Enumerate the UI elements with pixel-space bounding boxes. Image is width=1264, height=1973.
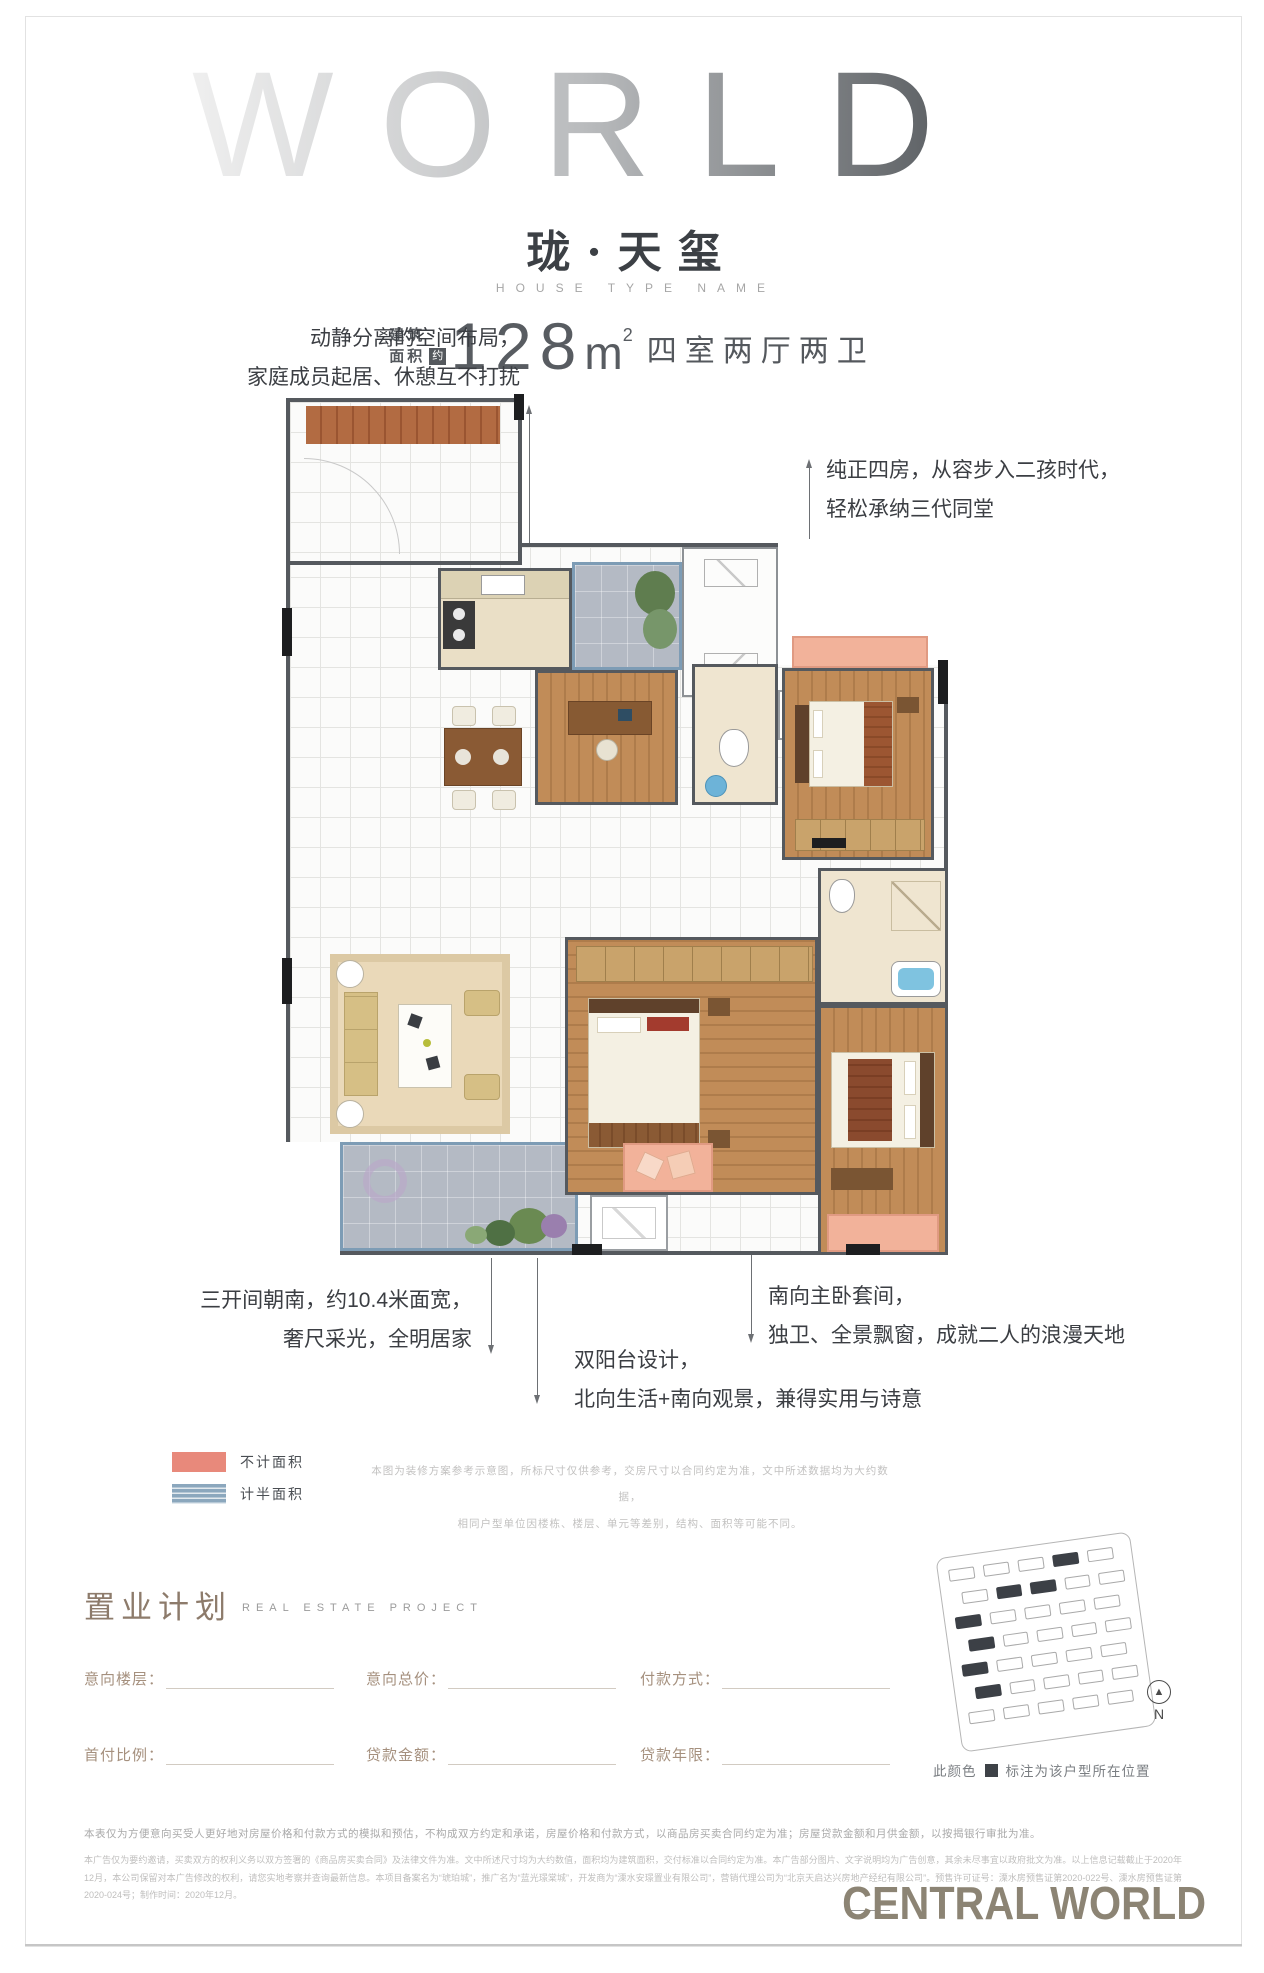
armchair (464, 990, 500, 1016)
building (1093, 1594, 1120, 1610)
shower (891, 881, 941, 931)
plant (643, 609, 677, 649)
caption-prefix: 此颜色 (933, 1760, 977, 1780)
bay-window-pink (623, 1143, 713, 1192)
plan-mask (282, 1142, 340, 1260)
field-down-payment: 首付比例： (84, 1744, 334, 1765)
area-unit-sup: 2 (623, 325, 633, 345)
building (1037, 1699, 1064, 1715)
annotation-north-layout: 动静分离的空间布局， 家庭成员起居、休憩互不打扰 (180, 320, 520, 398)
building (1031, 1652, 1058, 1668)
building (996, 1657, 1023, 1673)
bed (588, 998, 700, 1148)
appliance (704, 559, 758, 587)
building-highlighted (968, 1636, 995, 1651)
living-room-rug (330, 954, 510, 1134)
column (572, 1244, 602, 1255)
arrow-down-icon (748, 1334, 754, 1343)
kitchen (438, 568, 572, 670)
column (282, 958, 292, 1004)
sofa (344, 992, 378, 1096)
building (1112, 1665, 1139, 1680)
field-input-line[interactable] (722, 1668, 890, 1689)
building (1077, 1669, 1104, 1684)
bedroom-north (782, 668, 934, 860)
column (938, 660, 948, 704)
annotation-line: 三开间朝南，约10.4米面宽， (150, 1282, 472, 1321)
building-highlighted (961, 1661, 988, 1677)
section-title: 置业计划 (84, 1582, 232, 1627)
brand-text: WORLD (192, 40, 980, 203)
building (989, 1609, 1016, 1625)
plan-disclaimer-line: 相同户型单位因楼栋、楼层、单元等差别，结构、面积等可能不同。 (360, 1511, 900, 1537)
plan-disclaimer-line: 本图为装修方案参考示意图，所标尺寸仅供参考，交房尺寸以合同约定为准，文中所述数据… (360, 1458, 900, 1511)
building (1071, 1622, 1098, 1637)
building (968, 1709, 995, 1725)
side-table (336, 960, 364, 988)
washbasin (705, 775, 727, 797)
field-label: 首付比例： (84, 1744, 164, 1765)
area-unit: m2 (584, 327, 632, 374)
building (1059, 1599, 1086, 1615)
building (1105, 1617, 1132, 1632)
north-balcony (572, 562, 682, 670)
column (812, 838, 846, 848)
floor-plan (286, 398, 948, 1255)
master-bed (831, 1052, 935, 1148)
building-highlighted (975, 1684, 1002, 1699)
stove (443, 601, 475, 649)
building (1072, 1694, 1099, 1710)
building (1036, 1627, 1063, 1642)
column (282, 608, 292, 656)
toilet (829, 879, 855, 913)
bathtub (891, 961, 941, 997)
compass: ▲ N (1146, 1680, 1172, 1722)
leader-line-south-bays (491, 1258, 492, 1346)
building-highlighted (996, 1584, 1023, 1599)
building (1017, 1557, 1044, 1573)
field-label: 意向楼层： (84, 1668, 164, 1689)
leader-line-double-balcony (537, 1258, 538, 1396)
developer-logo: CENTRAL WORLD (842, 1878, 1206, 1931)
site-map (935, 1531, 1156, 1752)
south-balcony (340, 1142, 578, 1251)
annotation-master-suite: 南向主卧套间， 独卫、全景飘窗，成就二人的浪漫天地 (768, 1278, 1198, 1356)
house-type-title: 珑·天玺 (0, 216, 1264, 280)
dining-chair (452, 790, 476, 810)
legend-item-half-area: 计半面积 (172, 1484, 304, 1504)
building (983, 1561, 1010, 1577)
legend-swatch-blue (172, 1484, 226, 1504)
toilet (719, 729, 749, 767)
desk (568, 701, 652, 735)
master-bathroom (818, 868, 948, 1005)
field-input-line[interactable] (448, 1668, 616, 1689)
entry-balcony (286, 398, 522, 565)
building (1100, 1642, 1127, 1658)
building (1065, 1647, 1092, 1663)
bay-window-pink (827, 1214, 939, 1252)
laptop (618, 709, 632, 721)
legend-label: 不计面积 (240, 1452, 304, 1472)
entry-wood-deck (306, 406, 500, 444)
building (1002, 1631, 1029, 1646)
bottom-rule (25, 1944, 1242, 1946)
annotation-line: 动静分离的空间布局， (180, 320, 520, 359)
site-map-grid (948, 1546, 1142, 1725)
compass-icon: ▲ (1147, 1680, 1171, 1704)
compass-north-label: N (1146, 1706, 1172, 1722)
plant (635, 571, 675, 615)
annotation-south-bays: 三开间朝南，约10.4米面宽， 奢尺采光，全明居家 (150, 1282, 472, 1360)
building (948, 1566, 975, 1582)
bathroom (692, 664, 778, 805)
south-bay-window (590, 1195, 668, 1251)
annotation-line: 南向主卧套间， (768, 1278, 1198, 1317)
house-type-subtitle: HOUSE TYPE NAME (8, 281, 1264, 295)
field-input-line[interactable] (166, 1744, 334, 1765)
bed-headboard (795, 705, 809, 783)
arrow-down-icon (534, 1395, 540, 1404)
field-label: 意向总价： (366, 1668, 446, 1689)
desk-chair (596, 739, 618, 761)
dining-chair (492, 790, 516, 810)
field-intended-price: 意向总价： (366, 1668, 616, 1689)
field-input-line[interactable] (722, 1744, 890, 1765)
plan-disclaimer: 本图为装修方案参考示意图，所标尺寸仅供参考，交房尺寸以合同约定为准，文中所述数据… (360, 1458, 900, 1537)
field-payment-method: 付款方式： (640, 1668, 890, 1689)
plant (485, 1220, 515, 1246)
nightstand (897, 697, 919, 713)
brand-wordmark: WORLD (182, 38, 1082, 203)
field-loan-amount: 贷款金额： (366, 1744, 616, 1765)
annotation-line: 家庭成员起居、休憩互不打扰 (180, 359, 520, 398)
side-table (336, 1100, 364, 1128)
column (846, 1244, 880, 1255)
legend-label: 计半面积 (240, 1484, 304, 1504)
building (1107, 1689, 1134, 1705)
master-bedroom (818, 1005, 948, 1255)
field-intended-floor: 意向楼层： (84, 1668, 334, 1689)
wardrobe (576, 946, 813, 982)
building (1064, 1574, 1091, 1589)
door-swing-arc (304, 458, 400, 554)
room-count-label: 四室两厅两卫 (647, 326, 875, 370)
building (961, 1589, 988, 1604)
field-input-line[interactable] (448, 1744, 616, 1765)
building (1087, 1547, 1114, 1563)
field-label: 贷款年限： (640, 1744, 720, 1765)
building (1098, 1569, 1125, 1584)
dining-chair (492, 706, 516, 726)
plant (465, 1226, 487, 1244)
kitchen-sink (481, 575, 525, 595)
column (514, 394, 524, 420)
field-input-line[interactable] (166, 1668, 334, 1689)
study-room (535, 670, 678, 805)
decor-wreath (363, 1159, 407, 1203)
highlight-square-icon (985, 1764, 998, 1777)
caption-suffix: 标注为该户型所在位置 (1006, 1760, 1151, 1780)
field-loan-term: 贷款年限： (640, 1744, 890, 1765)
coffee-table (398, 1004, 452, 1088)
area-unit-m: m (584, 327, 622, 379)
dresser (831, 1168, 893, 1190)
building-highlighted (955, 1614, 982, 1630)
flowers (541, 1214, 567, 1238)
arrow-down-icon (488, 1345, 494, 1354)
legend-item-no-area: 不计面积 (172, 1452, 304, 1472)
building (1009, 1679, 1036, 1694)
poster-page: WORLD 珑·天玺 HOUSE TYPE NAME 建筑 面积 约 128 m… (0, 0, 1264, 1973)
bed (809, 701, 893, 787)
section-subtitle: REAL ESTATE PROJECT (242, 1602, 483, 1614)
building-highlighted (1030, 1579, 1057, 1594)
dining-table (444, 728, 522, 786)
dining-chair (452, 706, 476, 726)
site-map-caption: 此颜色 标注为该户型所在位置 (933, 1760, 1151, 1780)
building-highlighted (1052, 1552, 1079, 1568)
bedroom-south (565, 937, 818, 1195)
field-label: 贷款金额： (366, 1744, 446, 1765)
annotation-line: 北向生活+南向观景，兼得实用与诗意 (574, 1381, 1024, 1420)
legend-swatch-pink (172, 1452, 226, 1472)
nightstand (708, 998, 730, 1016)
armchair (464, 1074, 500, 1100)
annotation-line: 独卫、全景飘窗，成就二人的浪漫天地 (768, 1317, 1198, 1356)
annotation-line: 奢尺采光，全明居家 (150, 1321, 472, 1360)
building (1003, 1704, 1030, 1720)
building (1043, 1674, 1070, 1689)
building (1024, 1604, 1051, 1620)
footer-disclaimer-primary: 本表仅为方便意向买受人更好地对房屋价格和付款方式的模拟和预估，不构成双方约定和承… (84, 1826, 1084, 1841)
bay-window-pink (792, 636, 928, 668)
window-hatch (602, 1207, 656, 1239)
field-label: 付款方式： (640, 1668, 720, 1689)
